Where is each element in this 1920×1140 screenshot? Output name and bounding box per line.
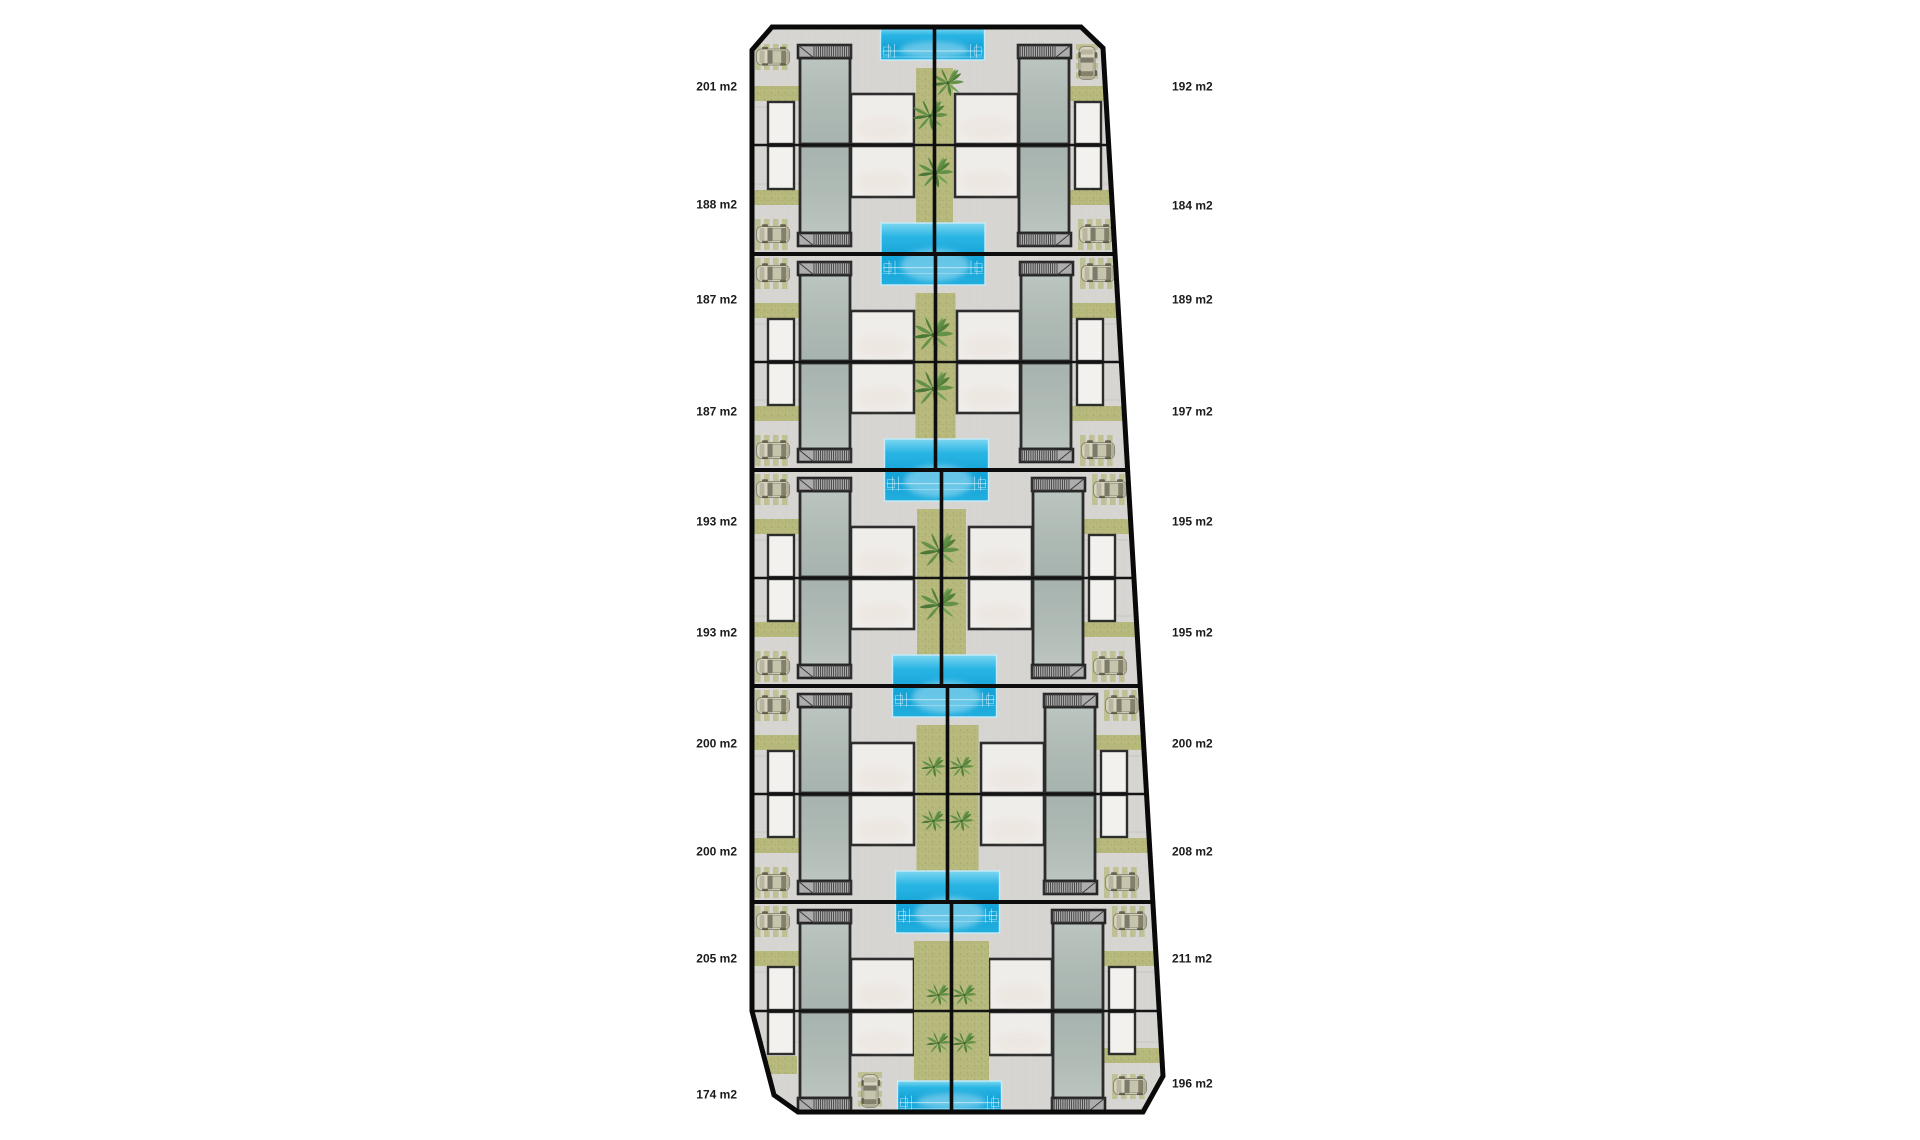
- svg-text:187 m2: 187 m2: [696, 293, 737, 307]
- svg-text:193 m2: 193 m2: [696, 515, 737, 529]
- svg-text:200 m2: 200 m2: [696, 845, 737, 859]
- svg-text:192 m2: 192 m2: [1172, 80, 1213, 94]
- svg-text:208 m2: 208 m2: [1172, 845, 1213, 859]
- svg-text:189 m2: 189 m2: [1172, 293, 1213, 307]
- svg-text:188 m2: 188 m2: [696, 198, 737, 212]
- svg-text:200 m2: 200 m2: [696, 737, 737, 751]
- svg-text:205 m2: 205 m2: [696, 952, 737, 966]
- svg-text:174 m2: 174 m2: [696, 1088, 737, 1102]
- svg-text:196 m2: 196 m2: [1172, 1077, 1213, 1091]
- svg-text:201 m2: 201 m2: [696, 80, 737, 94]
- svg-text:195 m2: 195 m2: [1172, 515, 1213, 529]
- svg-text:193 m2: 193 m2: [696, 626, 737, 640]
- svg-text:197 m2: 197 m2: [1172, 405, 1213, 419]
- svg-text:200 m2: 200 m2: [1172, 737, 1213, 751]
- svg-text:195 m2: 195 m2: [1172, 626, 1213, 640]
- svg-text:211 m2: 211 m2: [1172, 952, 1212, 966]
- svg-text:184 m2: 184 m2: [1172, 199, 1213, 213]
- svg-text:187 m2: 187 m2: [696, 405, 737, 419]
